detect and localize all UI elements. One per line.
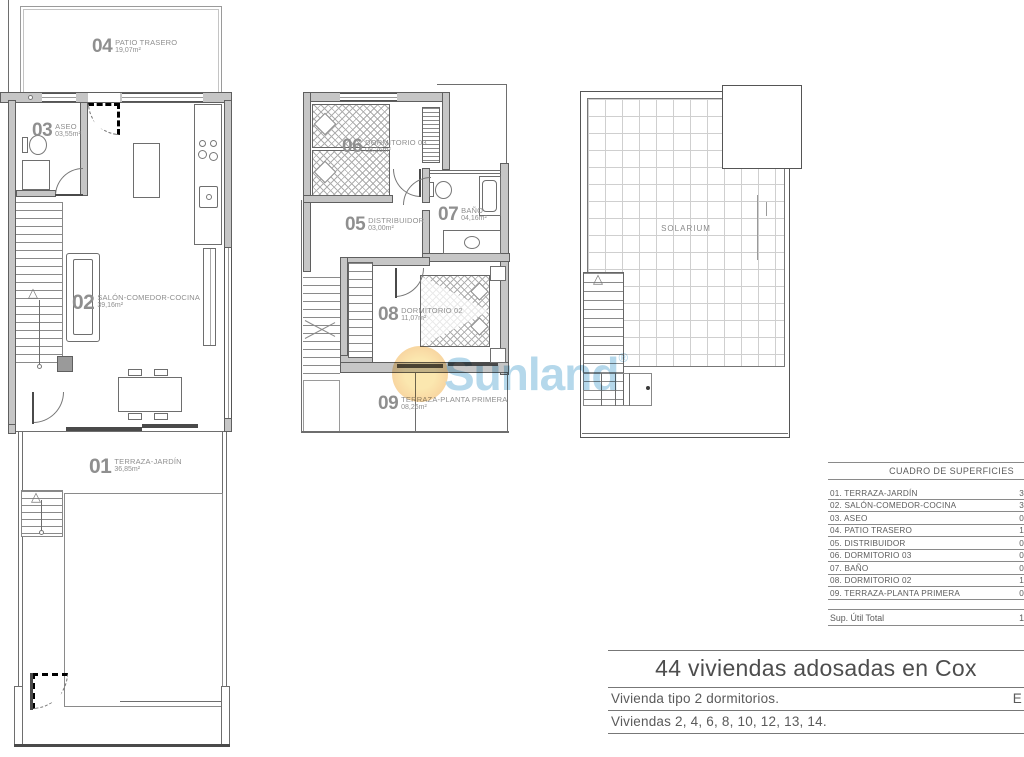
stairs-centerline	[39, 300, 40, 364]
row-label: 03. ASEO	[830, 514, 868, 523]
sun-icon	[392, 346, 448, 402]
row-value: 3	[1019, 501, 1024, 510]
wall-left	[303, 92, 311, 272]
bench-line	[766, 202, 767, 216]
row-label: 05. DISTRIBUIDOR	[830, 539, 906, 548]
room-area: 19,07m²	[115, 47, 177, 54]
room-label-dormitorio-02: 08 DORMITORIO 02 11,07m²	[378, 306, 463, 324]
brand-name: Sunland	[444, 348, 618, 400]
roof-bottom-inner-line	[582, 433, 788, 434]
fence-bottom	[14, 744, 230, 747]
room-number: 03	[32, 122, 52, 140]
row-value: 1	[1019, 576, 1024, 585]
title-row-type: Vivienda tipo 2 dormitorios. E	[608, 688, 1024, 711]
dining-table	[118, 377, 182, 412]
room-name: SALÓN-COMEDOR-COCINA	[97, 293, 200, 302]
window	[122, 93, 203, 102]
row-value: 3	[1019, 489, 1024, 498]
room-area: 04,16m²	[461, 215, 487, 222]
window	[42, 93, 76, 102]
room-name: BAÑO	[461, 206, 487, 215]
room-label-aseo: 03 ASEO 03,55m²	[32, 122, 81, 140]
dining-chair	[128, 369, 142, 376]
table-row: 04. PATIO TRASERO 1	[828, 525, 1024, 538]
table-row: 07. BAÑO 0	[828, 562, 1024, 575]
room-name: ASEO	[55, 122, 81, 131]
solarium-label: SOLARIUM	[640, 224, 732, 233]
table-row: 01. TERRAZA-JARDÍN 3	[828, 487, 1024, 500]
room-area: 08,26m²	[365, 147, 427, 154]
washbasin-icon	[443, 230, 501, 254]
stairs-centerline	[41, 500, 42, 532]
garden-gate-arc	[32, 673, 68, 709]
window-right	[224, 248, 232, 420]
kitchen-counter	[194, 104, 222, 245]
room-number: 01	[89, 457, 111, 477]
wall-bottom-post	[8, 424, 16, 434]
dorm02-door-leaf	[395, 268, 397, 298]
wall-right-post	[224, 418, 232, 432]
shower-icon	[22, 160, 50, 190]
aseo-door-leaf	[55, 194, 83, 196]
plan-sheet: { "colors": { "wall_fill": "#c6c6c6", "l…	[0, 0, 1024, 757]
wall-dorm06-bottom	[303, 195, 393, 203]
dining-chair	[154, 413, 168, 420]
sunland-watermark: Sunland®	[392, 346, 628, 402]
landing-step-line	[629, 373, 630, 406]
roof-notch	[722, 85, 802, 169]
bench-line	[757, 195, 758, 260]
nightstand-icon	[490, 266, 506, 281]
stairs-start-marker	[39, 530, 44, 535]
scale-label: E	[1013, 691, 1022, 706]
room-number: 08	[378, 306, 398, 324]
terrace-bottom-line	[301, 431, 509, 433]
stairs-arrow-icon: △	[28, 286, 38, 299]
salon-door-leaf	[32, 392, 34, 424]
garden-gate-leaf	[30, 673, 33, 710]
room-label-distribuidor: 05 DISTRIBUIDOR 03,00m²	[345, 216, 424, 234]
garden-step-line	[120, 701, 223, 702]
table-row: 09. TERRAZA-PLANTA PRIMERA 0	[828, 587, 1024, 600]
room-number: 04	[92, 38, 112, 56]
hob-burner	[209, 152, 218, 161]
row-value: 1	[1019, 526, 1024, 535]
neighbor-terrace-line	[506, 84, 507, 164]
table-row: 08. DORMITORIO 02 1	[828, 575, 1024, 588]
wall-right	[224, 100, 232, 248]
row-label: 09. TERRAZA-PLANTA PRIMERA	[830, 589, 960, 598]
row-label: 01. TERRAZA-JARDÍN	[830, 489, 918, 498]
room-label-patio-trasero: 04 PATIO TRASERO 19,07m²	[92, 38, 177, 56]
room-label-salon: 02 SALÓN-COMEDOR-COCINA 39,16m²	[72, 293, 200, 313]
room-label-dormitorio-03: 06 DORMITORIO 03 08,26m²	[342, 138, 427, 156]
room-number: 07	[438, 206, 458, 224]
hob-burner	[198, 150, 207, 159]
wall-left	[8, 100, 16, 432]
room-name: TERRAZA-JARDÍN	[114, 457, 181, 466]
table-row: 02. SALÓN-COMEDOR-COCINA 3	[828, 500, 1024, 513]
room-name: DORMITORIO 03	[365, 138, 427, 147]
stairs-start-marker	[37, 364, 42, 369]
room-area: 11,07m²	[401, 315, 463, 322]
sliding-glass-door	[142, 424, 198, 428]
stairs-arrow-icon: △	[593, 272, 603, 285]
landing-outline	[303, 380, 340, 432]
room-name: DISTRIBUIDOR	[368, 216, 424, 225]
row-value: 0	[1019, 514, 1024, 523]
bath-window-line	[430, 170, 501, 171]
total-value: 1	[1019, 613, 1024, 623]
surface-table: CUADRO DE SUPERFICIES 01. TERRAZA-JARDÍN…	[828, 462, 1024, 626]
room-area: 39,16m²	[97, 302, 200, 309]
sunland-logo-text: Sunland®	[444, 351, 628, 397]
table-row: 03. ASEO 0	[828, 512, 1024, 525]
window	[340, 93, 397, 101]
threshold-line	[16, 431, 224, 432]
row-value: 0	[1019, 539, 1024, 548]
terrace-boundary	[301, 200, 302, 432]
room-area: 03,00m²	[368, 225, 424, 232]
aseo-door-arc	[55, 168, 83, 196]
total-label: Sup. Útil Total	[830, 613, 884, 623]
row-label: 07. BAÑO	[830, 564, 868, 573]
fence-post	[14, 686, 23, 746]
exterior-stairs	[303, 277, 340, 377]
room-area: 03,55m²	[55, 131, 81, 138]
room-name: PATIO TRASERO	[115, 38, 177, 47]
bath-window-line	[430, 173, 501, 174]
row-value: 0	[1019, 564, 1024, 573]
table-row: 06. DORMITORIO 03 0	[828, 550, 1024, 563]
room-label-terraza-jardin: 01 TERRAZA-JARDÍN 36,85m²	[89, 457, 182, 477]
room-label-bano: 07 BAÑO 04,16m²	[438, 206, 487, 224]
row-value: 0	[1019, 551, 1024, 560]
wall-bath-bottom	[422, 253, 510, 262]
room-number: 06	[342, 138, 362, 156]
staircase	[348, 262, 373, 358]
wall-step-right	[442, 92, 450, 170]
room-area: 36,85m²	[114, 466, 181, 473]
title-block: 44 viviendas adosadas en Cox Vivienda ti…	[608, 650, 1024, 734]
row-label: 02. SALÓN-COMEDOR-COCINA	[830, 501, 956, 510]
row-label: 04. PATIO TRASERO	[830, 526, 912, 535]
wall-stair-left	[340, 257, 348, 357]
aseo-wall-bottom	[16, 190, 56, 197]
garden-lawn-outline	[64, 493, 223, 707]
row-label: 06. DORMITORIO 03	[830, 551, 912, 560]
dwelling-type: Vivienda tipo 2 dormitorios.	[611, 691, 779, 706]
row-label: 08. DORMITORIO 02	[830, 576, 912, 585]
plan-ground-floor: △ △ 04 PATIO TRASERO 19,07m	[0, 0, 240, 757]
row-value: 0	[1019, 589, 1024, 598]
room-number: 02	[72, 293, 94, 313]
table-row: 05. DISTRIBUIDOR 0	[828, 537, 1024, 550]
title-row-units: Viviendas 2, 4, 6, 8, 10, 12, 13, 14.	[608, 711, 1024, 734]
toilet-icon	[429, 180, 453, 200]
plot-boundary-line	[8, 0, 9, 92]
hob-burner	[199, 140, 206, 147]
registered-mark: ®	[618, 350, 628, 365]
dwelling-numbers: Viviendas 2, 4, 6, 8, 10, 12, 13, 14.	[611, 714, 827, 729]
salon-door-arc	[33, 392, 64, 423]
stairs-arrow-icon: △	[31, 490, 41, 503]
dining-chair	[128, 413, 142, 420]
door-opening	[88, 93, 120, 102]
room-area: 08,26m²	[401, 404, 507, 411]
room-name: DORMITORIO 02	[401, 306, 463, 315]
surface-table-title: CUADRO DE SUPERFICIES	[828, 462, 1024, 480]
fence-post	[221, 686, 230, 746]
hob-burner	[210, 140, 217, 147]
kitchen-sink	[199, 186, 218, 208]
handrail-post-marker	[646, 386, 650, 390]
tall-cabinet	[203, 248, 216, 346]
dining-chair	[154, 369, 168, 376]
patio-door-arc	[88, 103, 120, 135]
newel-post	[57, 356, 73, 372]
vent-icon	[28, 95, 33, 100]
neighbor-terrace-line	[437, 84, 507, 85]
kitchen-island	[133, 143, 160, 198]
project-title: 44 viviendas adosadas en Cox	[608, 650, 1024, 688]
room-number: 05	[345, 216, 365, 234]
table-total-row: Sup. Útil Total 1	[828, 609, 1024, 626]
